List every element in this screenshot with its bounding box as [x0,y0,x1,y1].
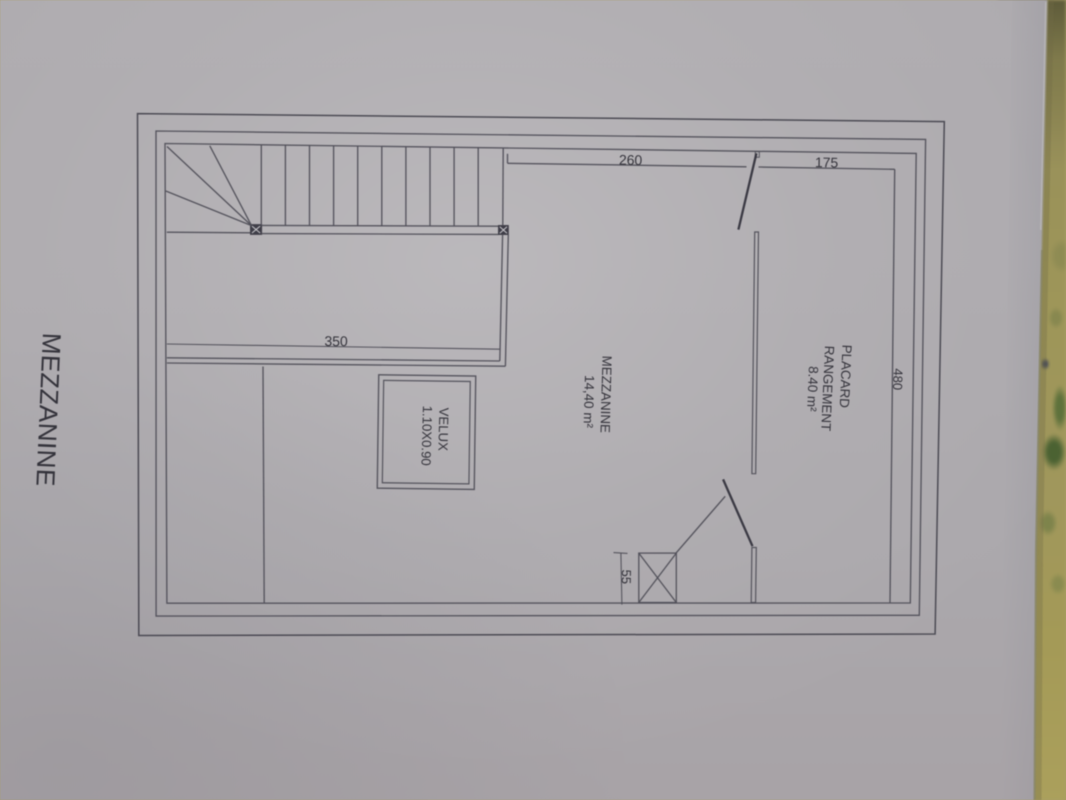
svg-text:55: 55 [619,569,634,584]
svg-text:8.40 m²: 8.40 m² [804,366,821,413]
svg-text:260: 260 [619,152,643,168]
svg-text:PLACARD: PLACARD [837,344,855,408]
svg-text:MEZZANINE: MEZZANINE [597,355,614,433]
svg-text:VELUX: VELUX [435,407,451,451]
svg-text:14,40 m²: 14,40 m² [581,375,597,429]
svg-text:480: 480 [890,368,906,390]
svg-text:350: 350 [324,333,348,349]
svg-text:175: 175 [815,154,839,170]
svg-text:1.10X0.90: 1.10X0.90 [418,405,435,466]
